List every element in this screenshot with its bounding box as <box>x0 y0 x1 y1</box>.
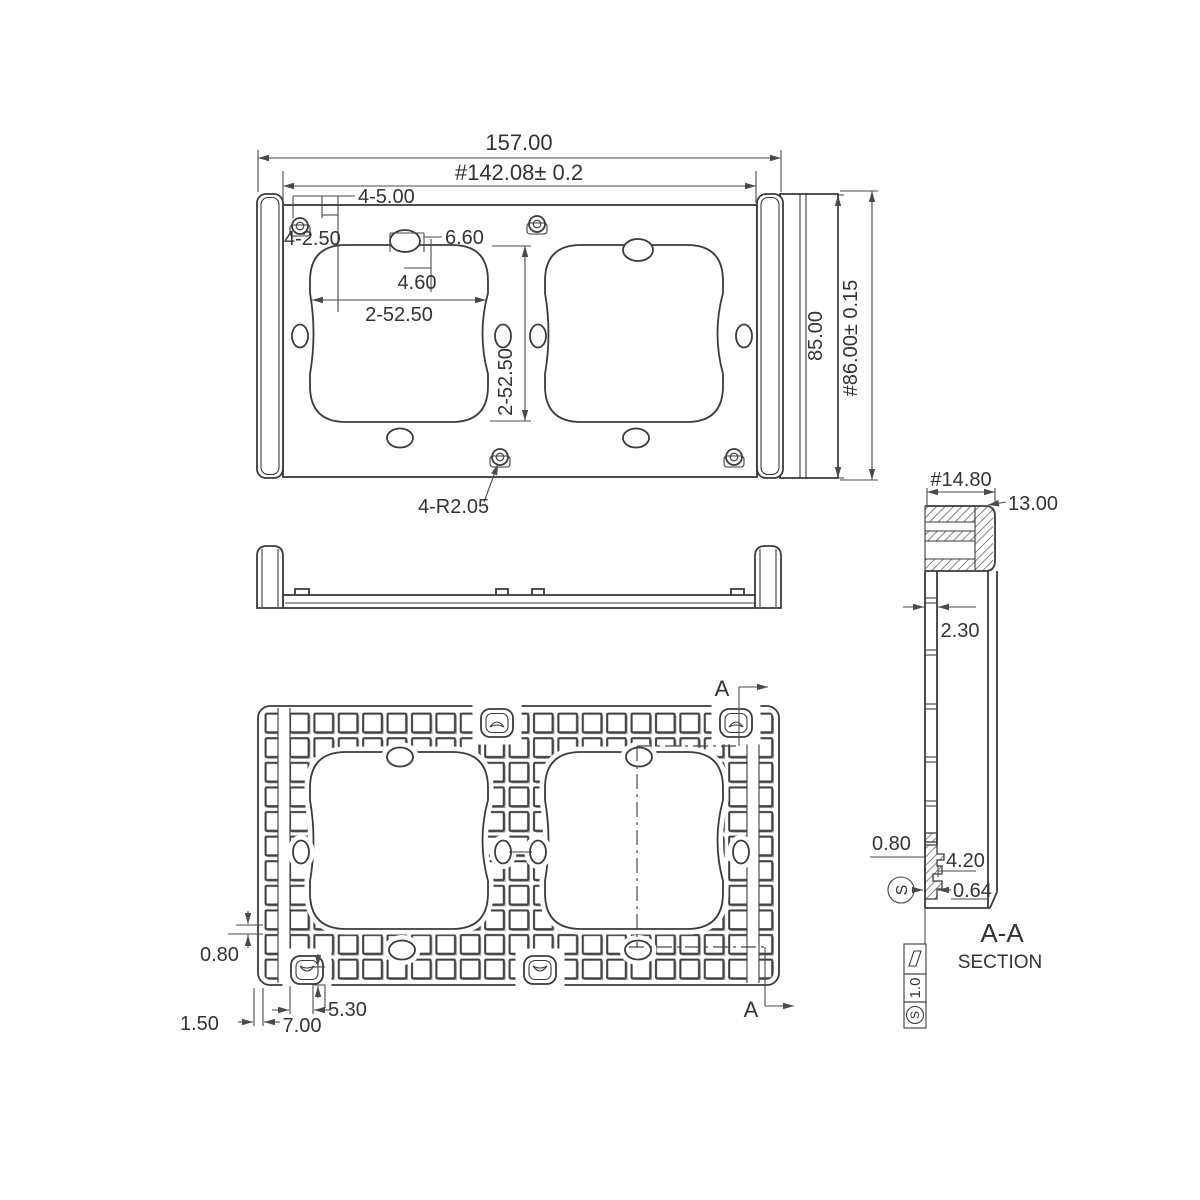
side-plate-bar <box>283 595 755 608</box>
front-left-clip <box>257 194 283 478</box>
dim-back-clip-width: 7.00 <box>283 1015 322 1037</box>
dim-front-mount-width: #142.08± 0.2 <box>455 160 583 185</box>
section-title: A-A <box>980 918 1024 948</box>
dim-back-clip-height: 5.30 <box>328 999 367 1021</box>
section-marker-top: A <box>715 676 730 701</box>
surface-finish-block: 1.0 S <box>904 908 926 1028</box>
front-cutout-right <box>545 245 723 422</box>
finish-value: 1.0 <box>907 978 924 999</box>
dim-section-cap-width: #14.80 <box>930 469 991 491</box>
side-view <box>257 546 781 608</box>
dim-section-lip: 0.80 <box>872 833 911 855</box>
dim-section-clip-gap: 0.64 <box>953 880 992 902</box>
cad-technical-drawing: 157.00 #142.08± 0.2 4-5.00 4-2.50 6.60 <box>0 0 1200 1200</box>
dim-front-slot-offset: 4.60 <box>398 272 437 294</box>
flatness-symbol-icon <box>909 951 921 966</box>
dim-front-mount-height: #86.00± 0.15 <box>840 280 862 397</box>
dim-front-cutout-width: 2-52.50 <box>365 304 433 326</box>
side-left-cap <box>257 546 283 608</box>
dim-front-corner-radius: 4-R2.05 <box>418 496 489 518</box>
side-tabs <box>295 589 744 595</box>
section-subtitle: SECTION <box>958 952 1042 973</box>
front-view: 157.00 #142.08± 0.2 4-5.00 4-2.50 6.60 <box>257 130 878 518</box>
dim-section-clip-length: 4.20 <box>946 850 985 872</box>
section-cap-block <box>925 506 995 571</box>
dim-front-screw-holes: 4-5.00 <box>358 186 415 208</box>
dim-front-slot-width: 6.60 <box>445 227 484 249</box>
dim-back-edge: 1.50 <box>180 1013 219 1035</box>
drawing-page: 157.00 #142.08± 0.2 4-5.00 4-2.50 6.60 <box>0 0 1200 1200</box>
dim-front-cutout-height: 2-52.50 <box>495 348 517 416</box>
section-view: #14.80 13.00 2.30 0.80 4.20 0.64 S A-A <box>870 469 1058 1028</box>
section-marker-bottom: A <box>744 997 759 1022</box>
dim-front-overall-width: 157.00 <box>485 130 552 155</box>
dim-front-overall-height: 85.00 <box>805 311 827 361</box>
dim-front-screw-offset: 4-2.50 <box>284 228 341 250</box>
back-view: A A 0.80 1.50 7.00 <box>180 676 794 1037</box>
front-right-clip <box>757 194 783 478</box>
dim-back-rib: 0.80 <box>200 944 239 966</box>
section-datum-letter: S <box>894 885 911 896</box>
section-clip-feature <box>925 845 944 899</box>
dim-section-wall: 2.30 <box>941 620 980 642</box>
side-right-cap <box>755 546 781 608</box>
finish-letter: S <box>908 1011 922 1019</box>
dim-section-cap-height: 13.00 <box>1008 493 1058 515</box>
